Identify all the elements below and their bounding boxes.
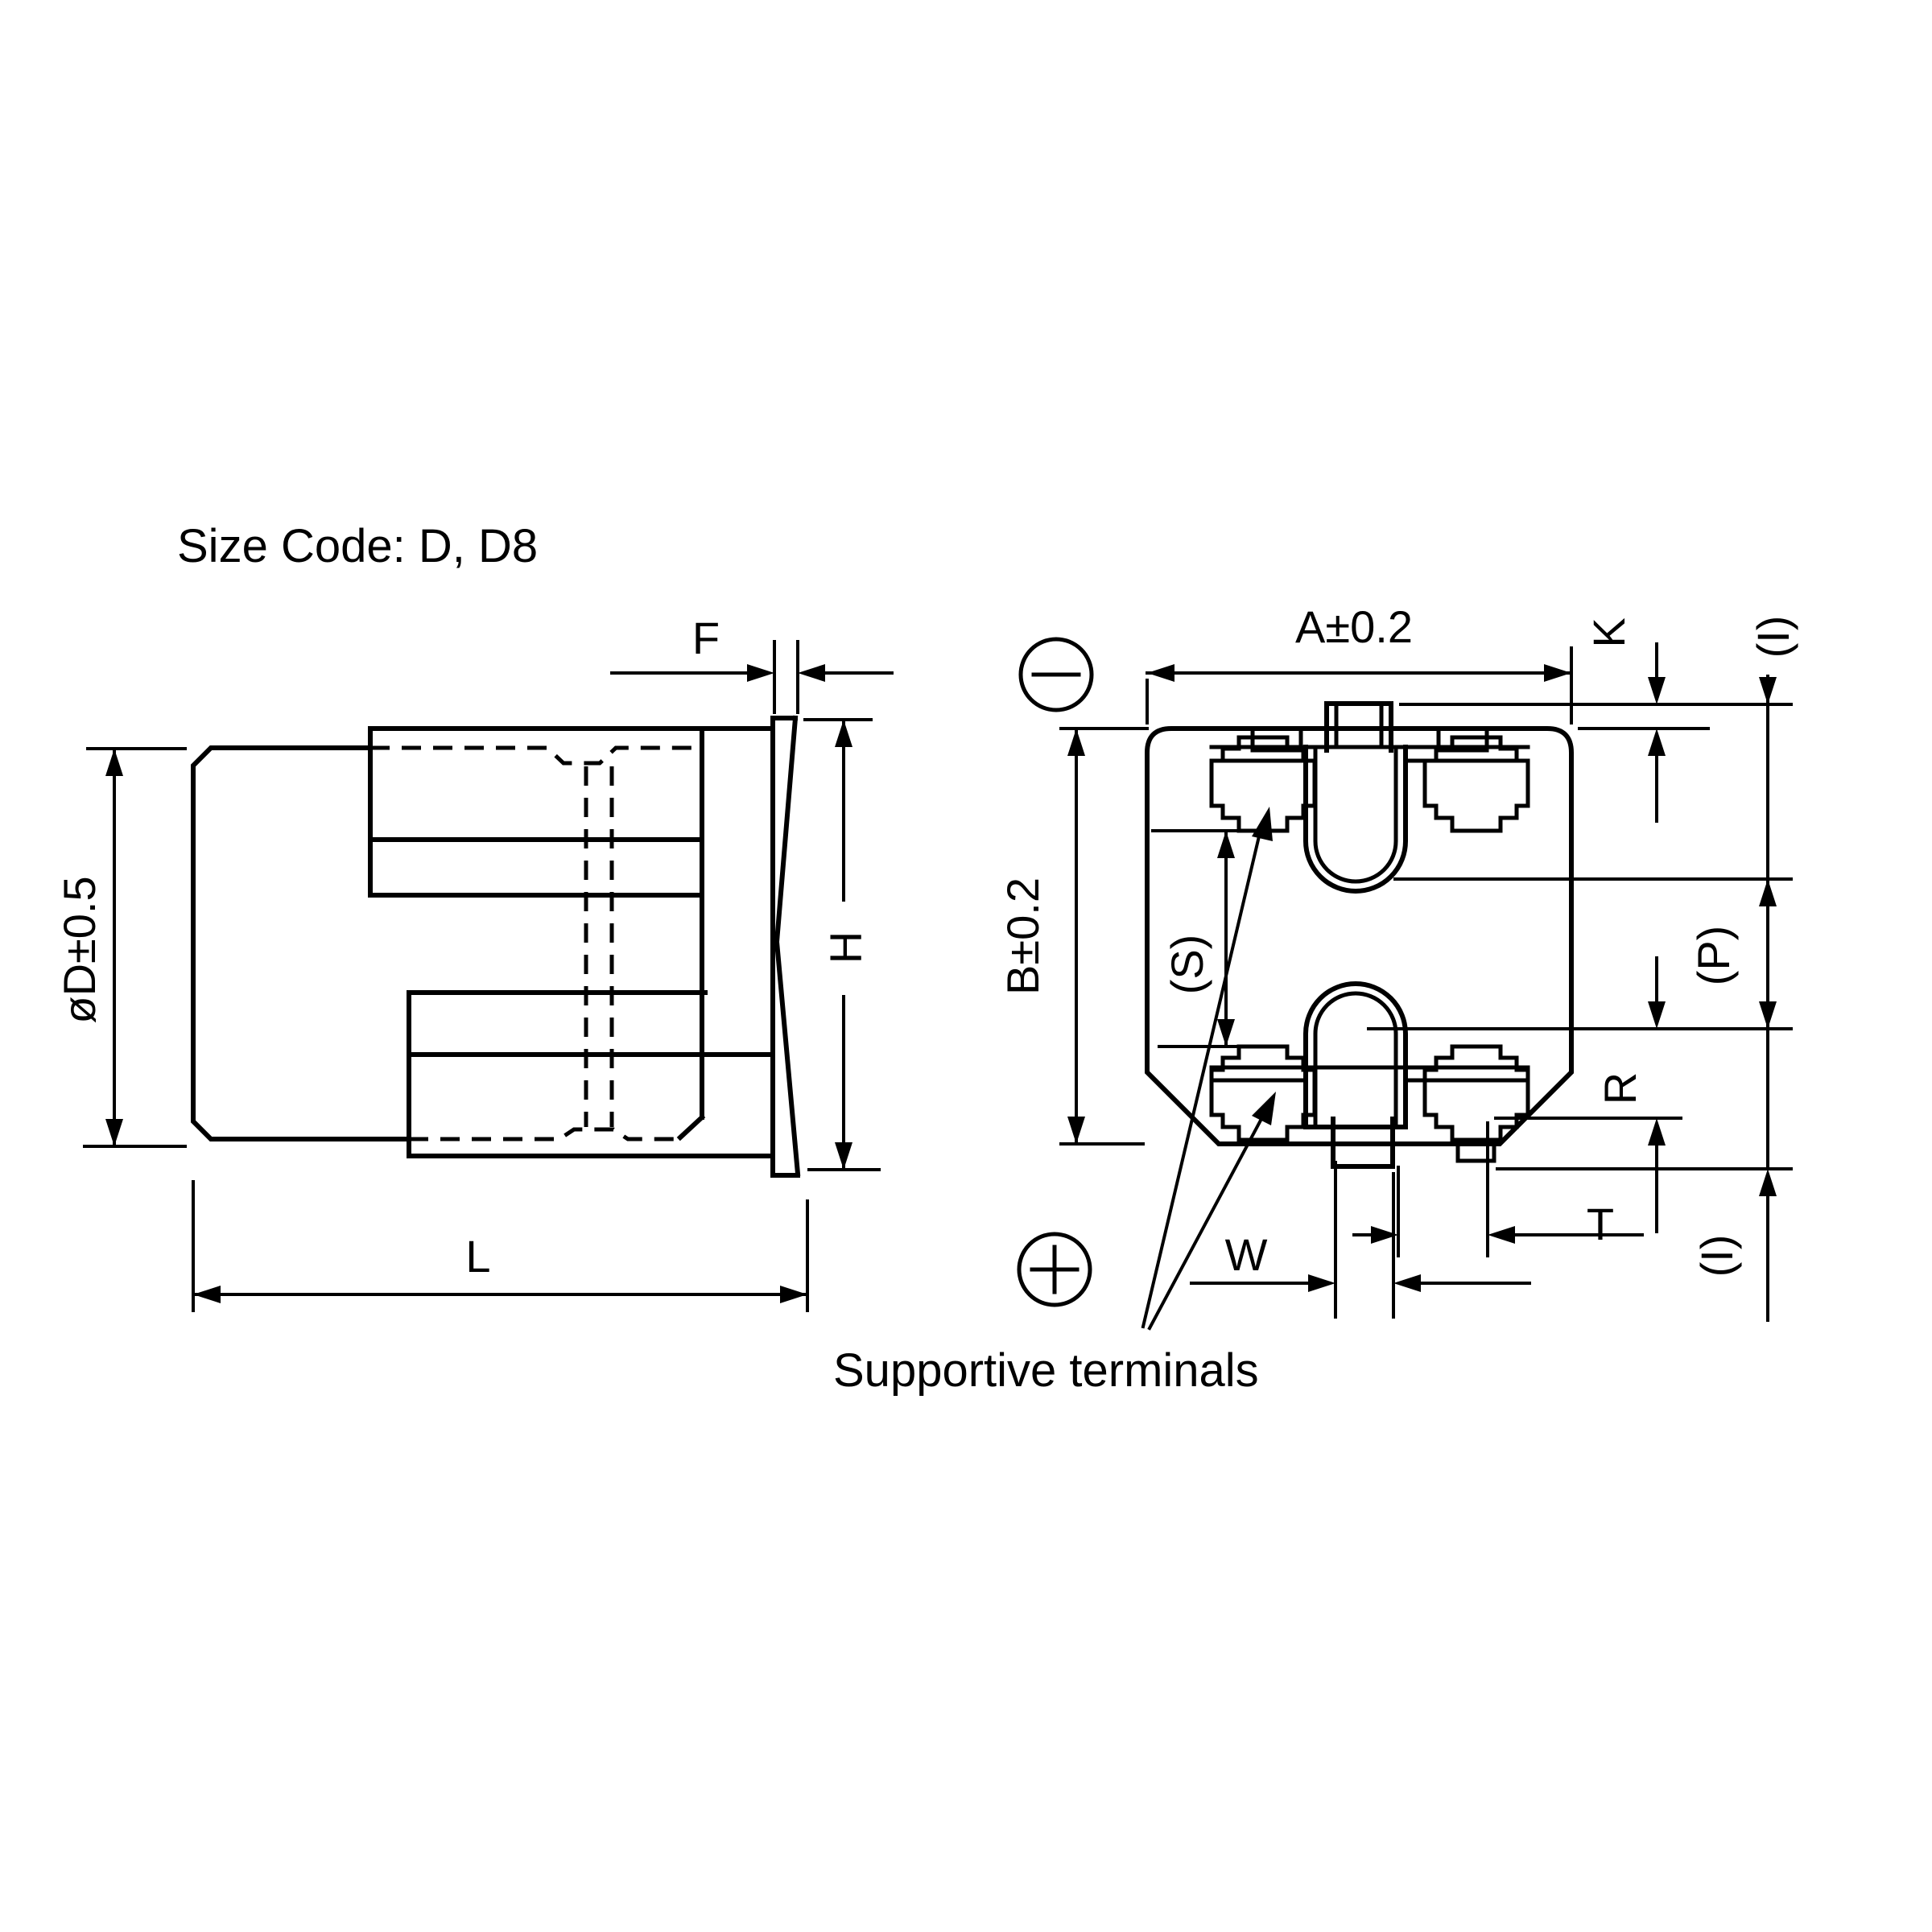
bottom-terminal [409, 993, 771, 1156]
arrowhead [1393, 1274, 1421, 1292]
arrowhead [798, 664, 825, 682]
can-hidden-top-edge [370, 748, 702, 763]
drawing-canvas: Size Code: D, D8 [0, 0, 1932, 1932]
can-bottom-right-chamfer [680, 1117, 702, 1137]
arrowhead [1147, 664, 1174, 682]
arrowhead [1252, 1092, 1276, 1125]
dimension-diameter: øD±0.5 [54, 749, 185, 1146]
label-p: (P) [1688, 926, 1739, 986]
arrowhead [1759, 677, 1777, 704]
polarity-plus-icon [1019, 1234, 1090, 1305]
capacitor-can-outline [193, 729, 702, 1139]
label-k: K [1583, 617, 1634, 647]
size-code-label: Size Code: D, D8 [177, 520, 538, 572]
arrowhead [1759, 1169, 1777, 1196]
arrowhead [1067, 1117, 1085, 1144]
arrowhead [1648, 1118, 1666, 1146]
side-view: F øD±0.5 H L [54, 613, 892, 1311]
arrowhead [1252, 807, 1273, 841]
bottom-view: A±0.2 B±0.2 (S) K [833, 601, 1798, 1397]
label-r: R [1595, 1072, 1645, 1104]
seat-plate-side [773, 718, 798, 1175]
dimension-b: B±0.2 [997, 729, 1147, 1144]
arrowhead [1217, 831, 1235, 858]
bottom-lead-slot [1306, 984, 1406, 1166]
label-h: H [820, 931, 871, 964]
arrowhead [835, 720, 852, 747]
dimension-f: F [612, 613, 892, 712]
arrowhead [747, 664, 774, 682]
label-i-top: (I) [1748, 616, 1798, 658]
arrowhead [1648, 729, 1666, 756]
top-terminal [370, 729, 770, 895]
label-i-bottom: (I) [1691, 1235, 1742, 1278]
supportive-terminal-pads [1212, 729, 1528, 1161]
arrowhead [1308, 1274, 1335, 1292]
label-supportive-terminals: Supportive terminals [833, 1344, 1259, 1397]
dimension-k: K [1583, 617, 1666, 821]
arrowhead [1648, 1001, 1666, 1029]
arrowhead [1217, 1019, 1235, 1046]
arrowhead [1759, 1001, 1777, 1029]
dimension-s: (S) [1153, 831, 1240, 1046]
capacitor-dimension-diagram: Size Code: D, D8 [0, 0, 1932, 1932]
label-t: T [1587, 1199, 1614, 1249]
arrowhead [835, 1142, 852, 1170]
top-lead-slot [1306, 704, 1406, 891]
dimension-chain-right: (I) (P) (I) [1688, 616, 1798, 1320]
dimension-w: W [1191, 1162, 1529, 1317]
dimension-r: R [1595, 958, 1666, 1232]
arrowhead [193, 1286, 221, 1303]
arrowhead [1067, 729, 1085, 756]
arrowhead [1759, 879, 1777, 906]
polarity-minus-icon [1021, 639, 1092, 710]
arrowhead [105, 1119, 123, 1146]
can-hidden-bottom-edge [409, 1129, 680, 1139]
arrowhead [1488, 1226, 1515, 1244]
dimension-h: H [805, 720, 879, 1170]
label-s: (S) [1162, 935, 1212, 995]
label-a: A±0.2 [1295, 601, 1413, 652]
label-l: L [465, 1231, 490, 1282]
label-diameter: øD±0.5 [54, 876, 105, 1023]
pad-bottom-right [1425, 1046, 1528, 1140]
label-b: B±0.2 [997, 877, 1048, 995]
pad-bottom-left [1212, 1046, 1315, 1140]
label-f: F [692, 613, 720, 663]
arrowhead [1648, 677, 1666, 704]
label-w: W [1225, 1229, 1268, 1280]
arrowhead [1544, 664, 1571, 682]
arrowhead [105, 749, 123, 776]
arrowhead [780, 1286, 807, 1303]
dimension-l: L [193, 1182, 807, 1311]
